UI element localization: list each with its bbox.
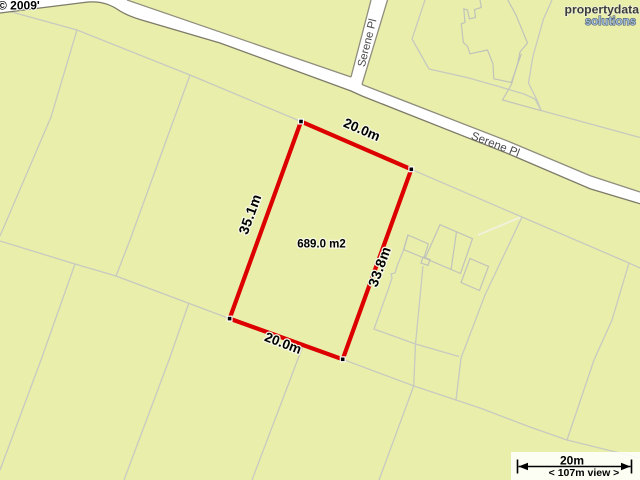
svg-text:propertydata: propertydata	[565, 3, 640, 17]
svg-text:689.0 m2: 689.0 m2	[297, 239, 346, 251]
svg-text:< 107m view >: < 107m view >	[549, 467, 620, 479]
svg-text:solutions: solutions	[585, 16, 636, 28]
svg-text:© 2009': © 2009'	[0, 0, 40, 13]
svg-text:20m: 20m	[560, 453, 584, 467]
